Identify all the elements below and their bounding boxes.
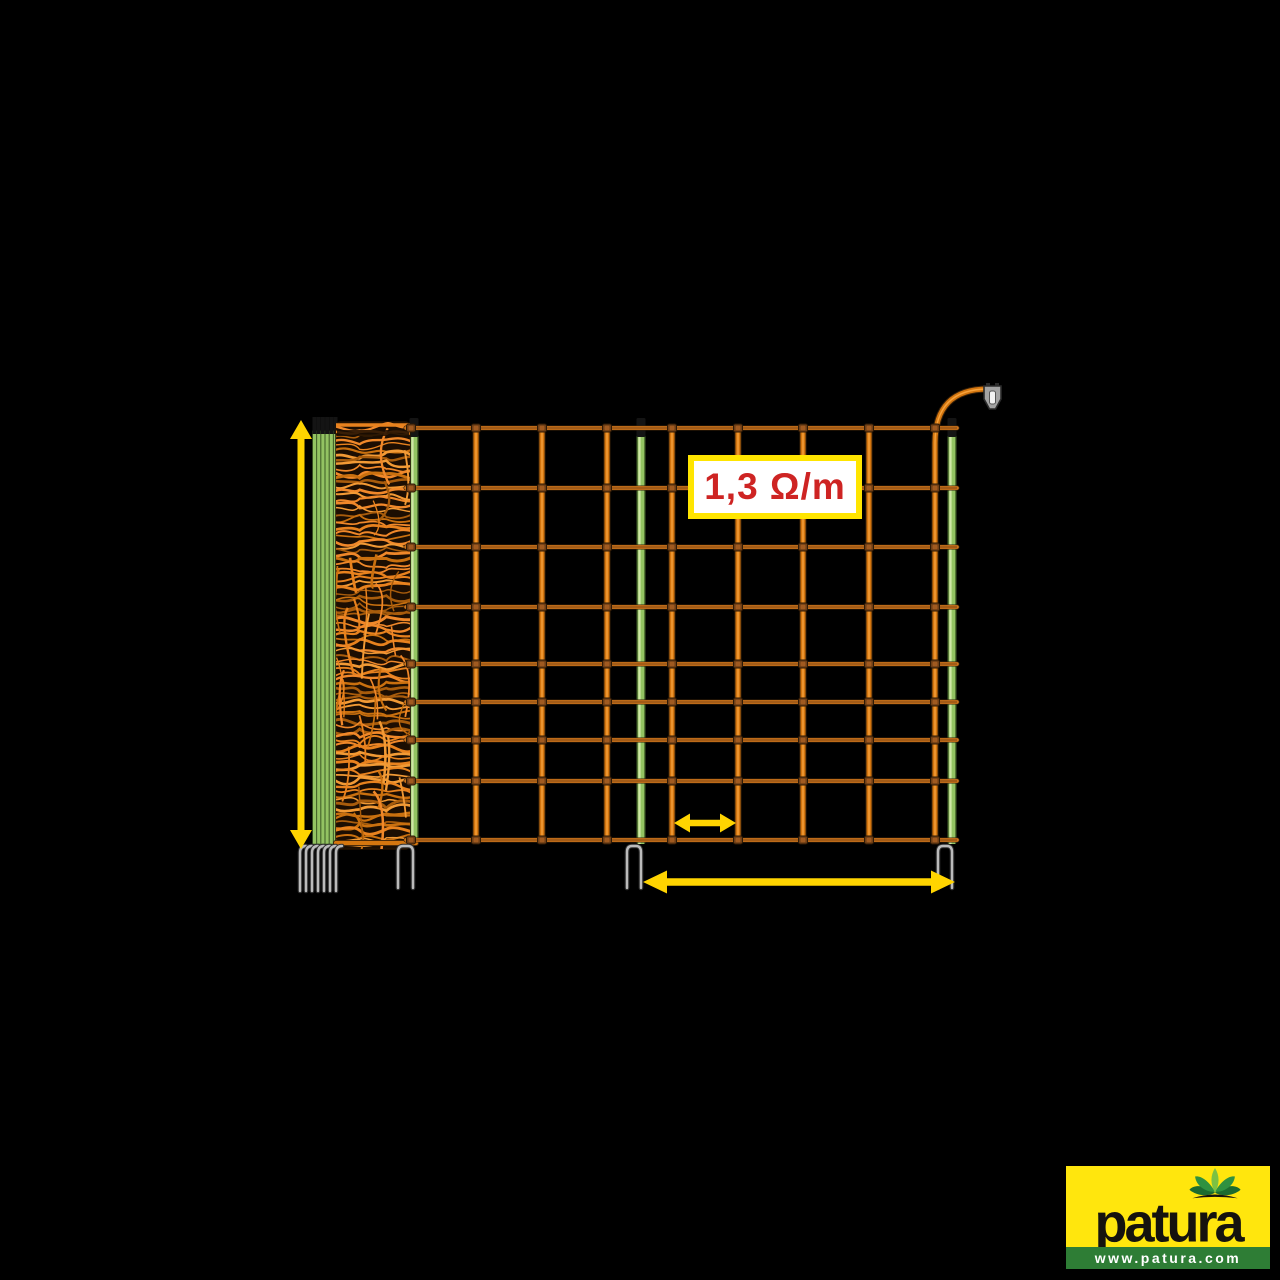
net-roll (331, 422, 416, 856)
logo-url-strip: www.patura.com (1066, 1247, 1270, 1269)
post-bundle (313, 417, 338, 844)
height-arrow (290, 420, 312, 849)
post-spacing-arrow (643, 871, 955, 894)
mesh-width-arrow (674, 814, 736, 833)
website-url: www.patura.com (1095, 1250, 1242, 1266)
resistance-value: 1,3 Ω/m (704, 466, 846, 508)
resistance-label: 1,3 Ω/m (688, 455, 862, 519)
fence-illustration (0, 0, 1280, 1280)
connection-clip (984, 383, 1001, 409)
patura-logo: patura www.patura.com (1066, 1166, 1270, 1269)
brand-text: patura (1066, 1195, 1270, 1250)
canvas: 1,3 Ω/m patura www.patura.com (0, 0, 1280, 1280)
